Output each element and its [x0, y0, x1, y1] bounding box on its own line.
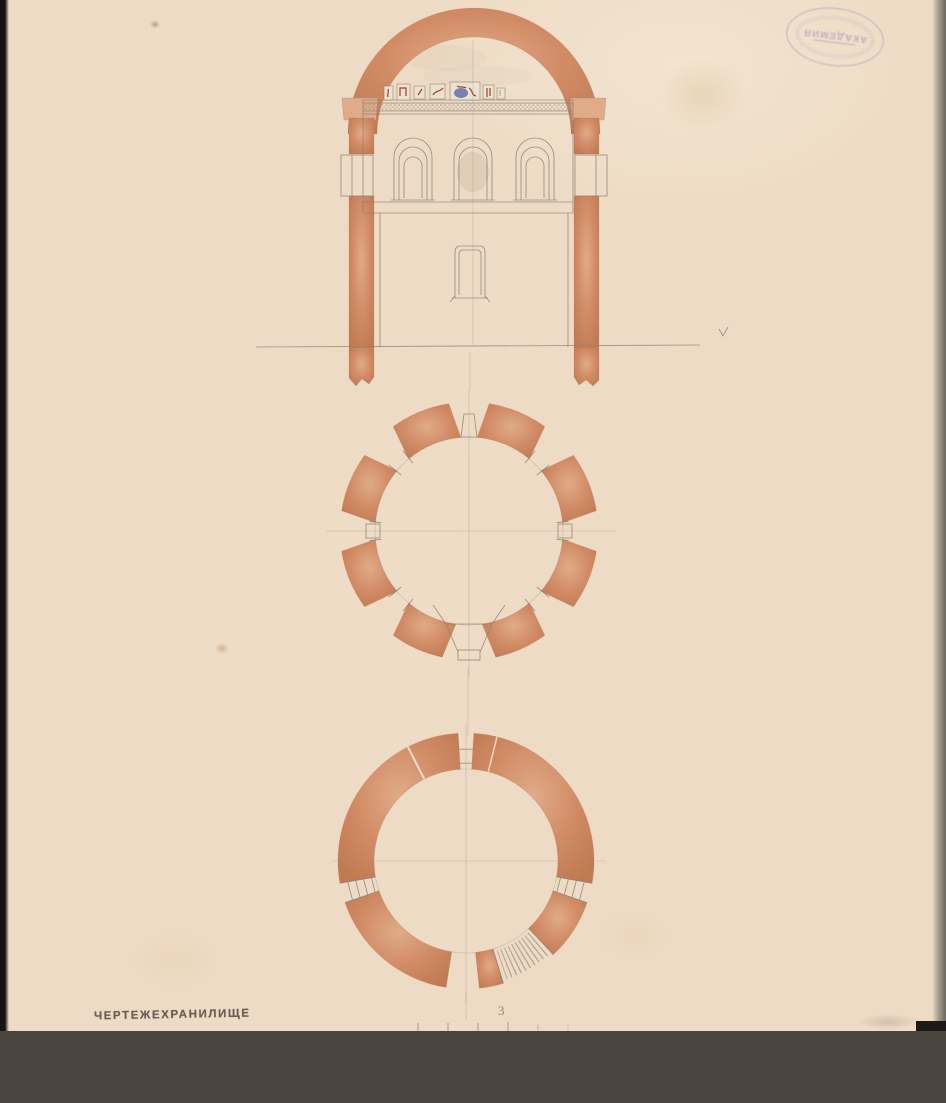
frieze-crosshatch-band [363, 104, 573, 112]
scale-bar-ticks [418, 1022, 568, 1031]
right-pier-upper [574, 118, 599, 154]
scan-bottom-band [0, 1031, 946, 1103]
gallery-window-right [513, 138, 557, 200]
plan-upper-level [326, 389, 616, 736]
wall-segment [345, 891, 452, 987]
wall-segment [541, 539, 596, 607]
fresco-mark-blue [454, 88, 468, 98]
stamp-border-text-ring [784, 3, 886, 70]
plan-ground-level [331, 722, 606, 1020]
section-drawing [256, 8, 728, 390]
left-pier-upper [349, 118, 374, 154]
lower-window [450, 246, 490, 302]
ground-line [256, 345, 700, 347]
stair-treads [502, 944, 538, 965]
fragment-panel [397, 84, 410, 100]
left-pier-lower [349, 196, 374, 348]
wall-segment [529, 891, 587, 955]
pier-gap-right [575, 155, 607, 196]
fragment-panel [483, 85, 494, 99]
fragment-panel [497, 88, 505, 99]
left-pier-footing [349, 348, 374, 386]
fresco-mark [388, 89, 389, 97]
scale-number: 3 [498, 1003, 505, 1019]
south-opening-edges [446, 952, 479, 988]
pier-gap-left [341, 155, 373, 196]
right-pier-footing [574, 348, 599, 386]
wall-segment [393, 603, 456, 657]
scan-edge-right [932, 0, 946, 1103]
right-pier-lower [574, 196, 599, 348]
gallery-window-left [391, 138, 435, 200]
pencil-check-mark [719, 327, 728, 336]
impost-block-right [570, 98, 606, 120]
scan-page: АКАДЕМИЯ ЧЕРТЕЖЕХРАНИЛИЩЕ 3 [0, 0, 946, 1103]
wall-segment [342, 539, 397, 607]
naos-outline [363, 100, 573, 347]
wall-segment [482, 603, 545, 657]
architectural-drawing [0, 0, 946, 1103]
scan-edge-left [0, 0, 9, 1103]
